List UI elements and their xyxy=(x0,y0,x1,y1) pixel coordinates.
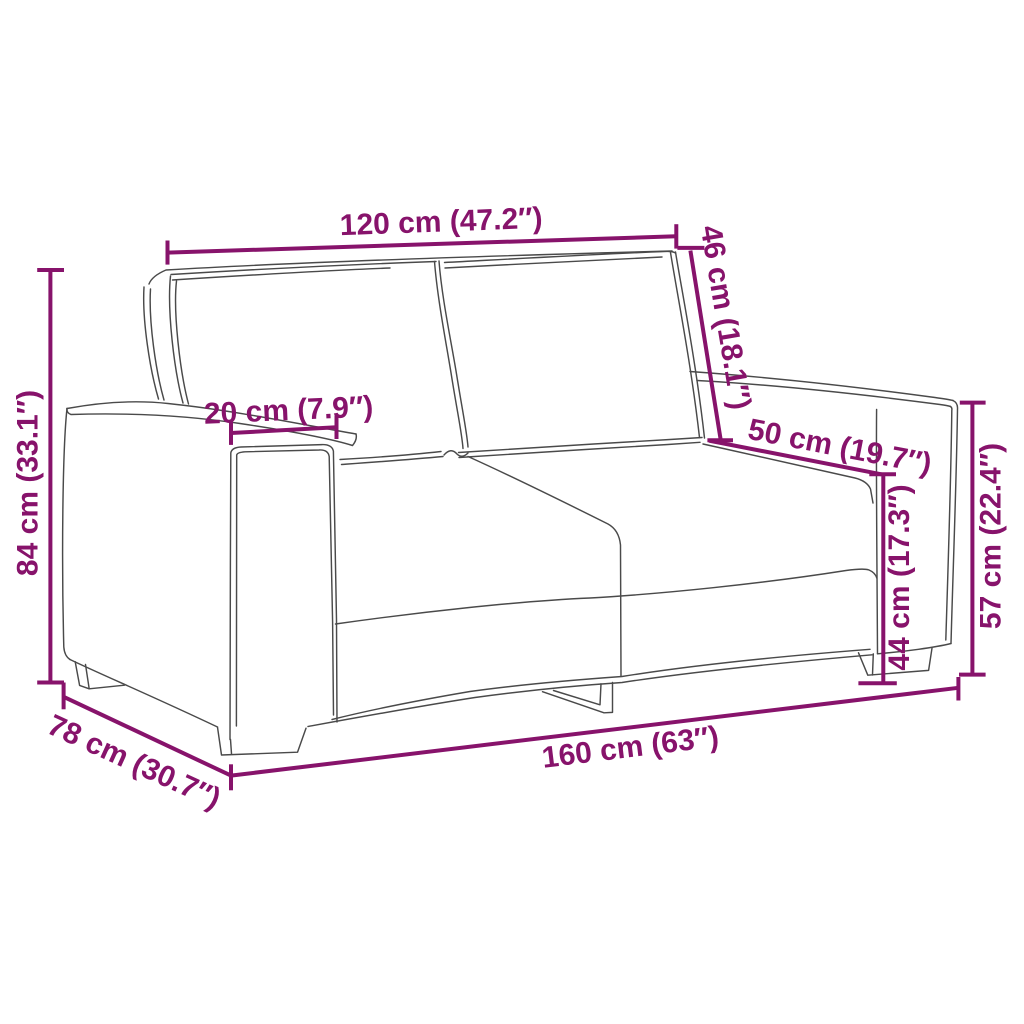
svg-text:57 cm (22.4″): 57 cm (22.4″) xyxy=(974,443,1007,629)
svg-text:84 cm (33.1″): 84 cm (33.1″) xyxy=(12,390,45,576)
svg-text:44 cm (17.3″): 44 cm (17.3″) xyxy=(883,484,916,670)
